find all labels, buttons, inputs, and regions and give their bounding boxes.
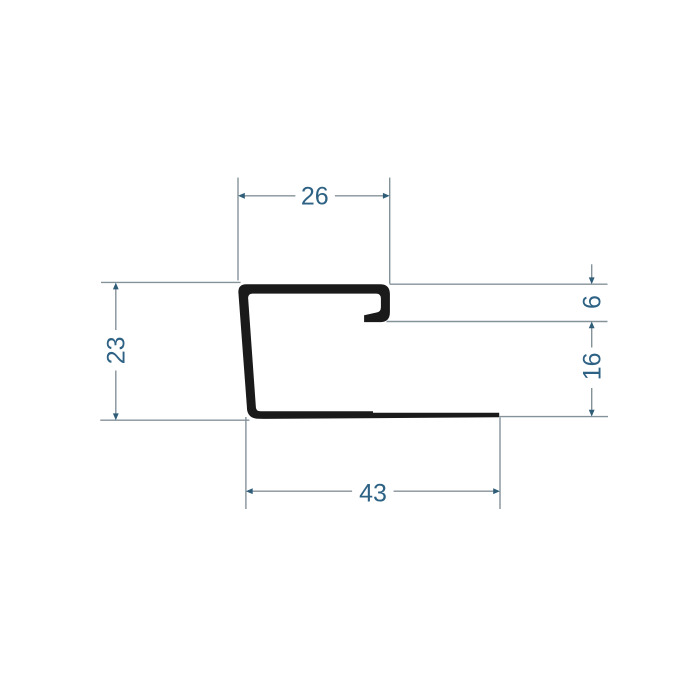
svg-text:23: 23 xyxy=(103,336,131,364)
svg-text:26: 26 xyxy=(301,183,329,211)
svg-text:16: 16 xyxy=(579,352,607,380)
svg-text:43: 43 xyxy=(359,479,387,507)
svg-text:6: 6 xyxy=(579,295,607,309)
